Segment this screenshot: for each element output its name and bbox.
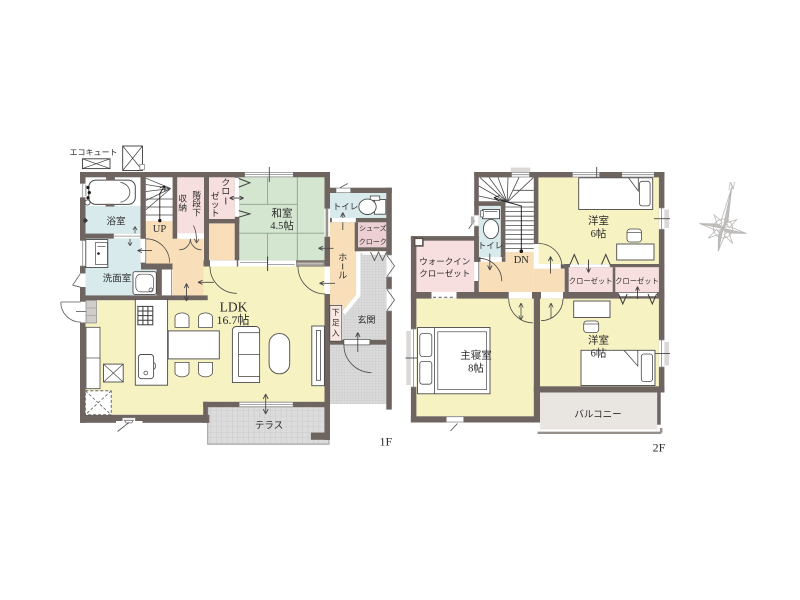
- svg-text:DN: DN: [514, 255, 530, 266]
- svg-text:洋室: 洋室: [588, 334, 609, 347]
- svg-text:6帖: 6帖: [591, 227, 607, 240]
- svg-text:1F: 1F: [379, 435, 392, 449]
- svg-text:クローク: クローク: [359, 238, 387, 246]
- svg-text:ゼット: ゼット: [211, 190, 220, 218]
- svg-text:クローゼット: クローゼット: [569, 277, 613, 286]
- svg-text:洋室: 洋室: [588, 214, 609, 227]
- svg-text:16.7帖: 16.7帖: [216, 312, 249, 327]
- svg-text:2F: 2F: [653, 441, 666, 455]
- svg-text:シューズ: シューズ: [359, 224, 387, 233]
- svg-text:4.5帖: 4.5帖: [270, 219, 294, 232]
- svg-text:N: N: [727, 181, 736, 193]
- svg-text:主寝室: 主寝室: [460, 349, 492, 362]
- svg-text:下足入: 下足入: [332, 308, 340, 338]
- svg-text:クローゼット: クローゼット: [615, 277, 659, 286]
- svg-text:クロ: クロ: [221, 178, 230, 197]
- svg-text:トイレ: トイレ: [478, 241, 504, 251]
- svg-text:ル: ル: [338, 271, 347, 281]
- svg-text:ホ: ホ: [338, 253, 347, 263]
- svg-text:UP: UP: [153, 224, 167, 235]
- svg-text:収納: 収納: [178, 193, 187, 213]
- svg-text:バルコニー: バルコニー: [574, 410, 621, 421]
- svg-text:トイレ: トイレ: [333, 202, 359, 212]
- svg-text:洗面室: 洗面室: [103, 273, 132, 285]
- svg-text:8帖: 8帖: [468, 362, 484, 375]
- svg-text:和室: 和室: [272, 207, 293, 220]
- svg-text:浴室: 浴室: [106, 216, 125, 228]
- svg-text:エコキュート: エコキュート: [70, 148, 118, 157]
- svg-text:テラス: テラス: [255, 421, 283, 432]
- svg-text:6帖: 6帖: [591, 347, 607, 360]
- svg-text:玄関: 玄関: [357, 314, 375, 325]
- svg-text:ウォークイン: ウォークイン: [419, 256, 470, 266]
- svg-text:階段下: 階段下: [192, 190, 201, 217]
- svg-text:クローゼット: クローゼット: [419, 269, 470, 279]
